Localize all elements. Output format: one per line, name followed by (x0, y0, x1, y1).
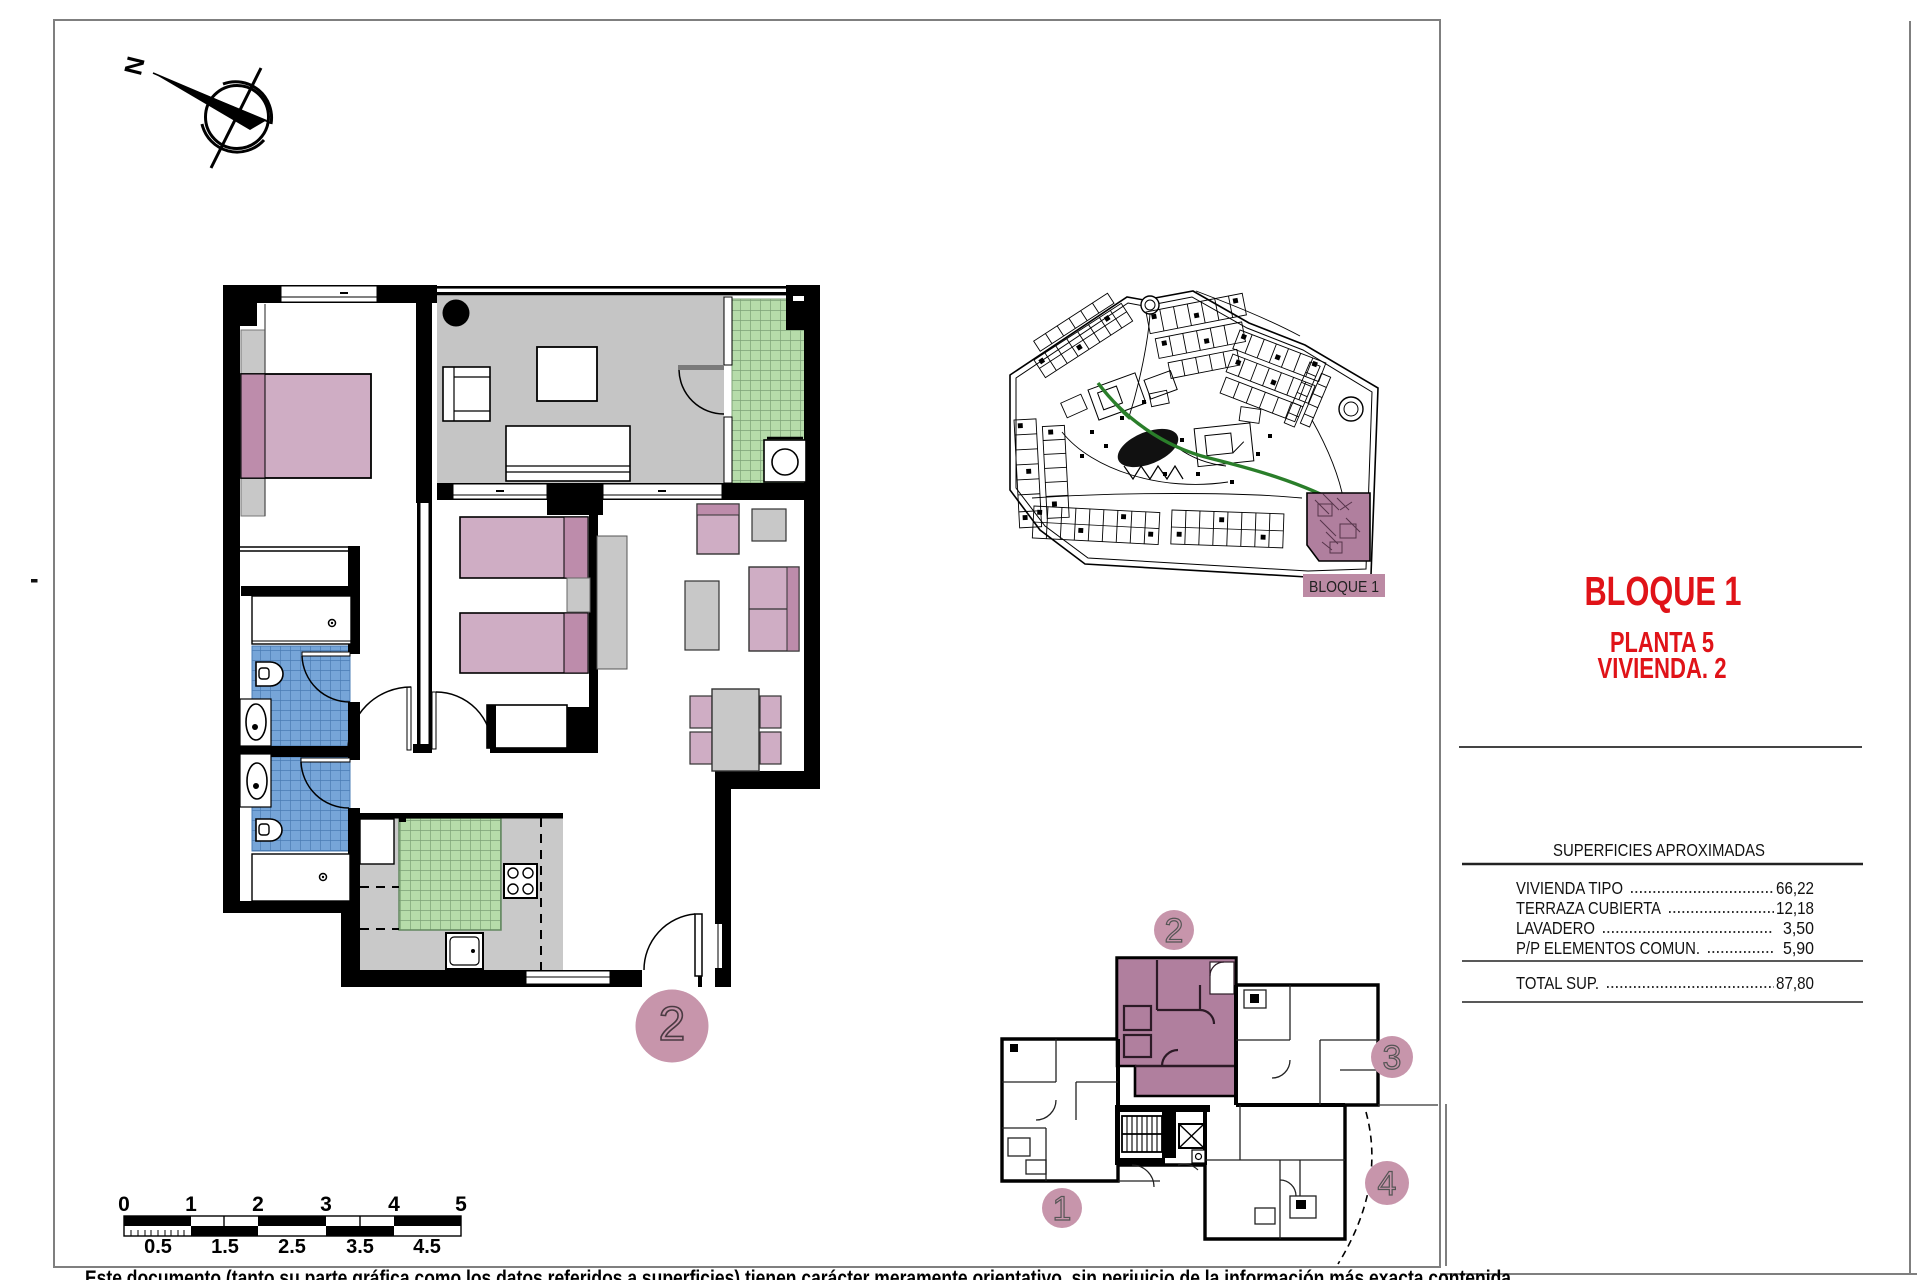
svg-text:0: 0 (118, 1193, 130, 1216)
svg-text:3,50: 3,50 (1783, 918, 1814, 938)
svg-text:LAVADERO: LAVADERO (1516, 918, 1595, 938)
svg-text:TERRAZA CUBIERTA: TERRAZA CUBIERTA (1516, 898, 1661, 918)
svg-text:0.5: 0.5 (144, 1236, 172, 1258)
svg-text:VIVIENDA. 2: VIVIENDA. 2 (1598, 653, 1727, 685)
svg-text:TOTAL SUP.: TOTAL SUP. (1516, 973, 1599, 993)
svg-text:3: 3 (320, 1193, 332, 1216)
svg-text:2: 2 (1165, 912, 1184, 950)
svg-text:4.5: 4.5 (413, 1236, 441, 1258)
svg-text:5,90: 5,90 (1783, 938, 1814, 958)
svg-text:P/P ELEMENTOS COMUN.: P/P ELEMENTOS COMUN. (1516, 938, 1700, 958)
svg-text:N: N (118, 53, 150, 77)
svg-text:BLOQUE 1: BLOQUE 1 (1309, 579, 1379, 596)
svg-text:2: 2 (659, 998, 686, 1051)
svg-text:66,22: 66,22 (1776, 878, 1814, 898)
svg-text:VIVIENDA TIPO: VIVIENDA TIPO (1516, 878, 1623, 898)
svg-text:4: 4 (1378, 1165, 1397, 1203)
svg-text:87,80: 87,80 (1776, 973, 1814, 993)
svg-text:2.5: 2.5 (278, 1236, 306, 1258)
svg-text:3: 3 (1383, 1039, 1402, 1077)
svg-text:1.5: 1.5 (211, 1236, 239, 1258)
svg-text:Este documento (tanto su parte: Este documento (tanto su parte gráfica c… (85, 1266, 1512, 1280)
svg-text:5: 5 (455, 1193, 467, 1216)
svg-text:BLOQUE 1: BLOQUE 1 (1585, 568, 1742, 614)
svg-text:2: 2 (252, 1193, 264, 1216)
svg-text:SUPERFICIES APROXIMADAS: SUPERFICIES APROXIMADAS (1553, 840, 1765, 860)
svg-text:3.5: 3.5 (346, 1236, 374, 1258)
svg-text:1: 1 (185, 1193, 197, 1216)
svg-text:12,18: 12,18 (1776, 898, 1814, 918)
svg-text:4: 4 (388, 1193, 400, 1216)
svg-text:1: 1 (1053, 1190, 1072, 1228)
